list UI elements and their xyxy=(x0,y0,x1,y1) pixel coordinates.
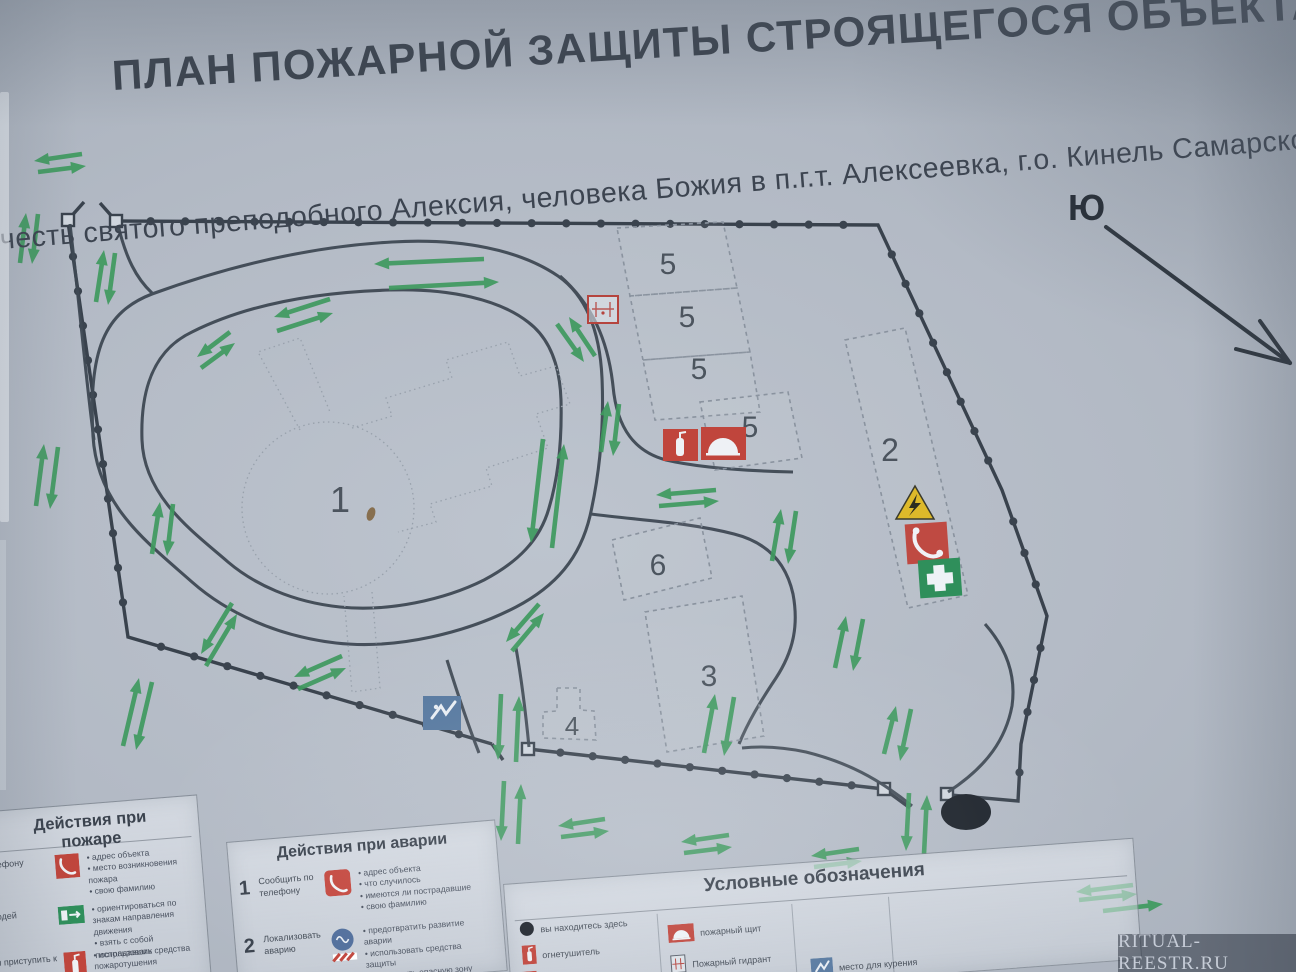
smoking-area-icon xyxy=(423,696,461,730)
step-number: 2 xyxy=(243,934,265,959)
symbol-fire-shield: пожарный щит xyxy=(667,918,762,945)
roads xyxy=(70,224,1013,806)
symbol-label: огнетушитель xyxy=(542,946,600,960)
you-are-here-marker xyxy=(941,794,991,830)
symbol-smoking-area: место для курения xyxy=(810,951,918,972)
building-3-label: 3 xyxy=(701,660,718,693)
containment-icon xyxy=(329,926,360,967)
fire-hydrant-icon xyxy=(670,954,687,972)
row-label: Локализовать аварию xyxy=(263,929,331,958)
column-divider xyxy=(791,904,798,972)
poster-edge-highlight xyxy=(0,92,9,522)
building-5a-label: 5 xyxy=(660,248,677,281)
legend-row: 2 Локализовать аварию предотвратить разв… xyxy=(243,915,501,972)
watermark: RITUAL-REESTR.RU xyxy=(1118,934,1296,972)
symbol-label: место для курения xyxy=(839,957,918,972)
fire-extinguisher-icon xyxy=(63,951,87,972)
emergency-phone-icon xyxy=(905,522,950,565)
ring-road-inner xyxy=(142,290,561,608)
symbol-label: пожарный щит xyxy=(700,923,762,937)
row-label: Эвакуировать людей xyxy=(0,907,58,930)
north-gate-road xyxy=(70,224,94,440)
building-2-label: 2 xyxy=(881,432,899,468)
symbol-label: вы находитесь здесь xyxy=(540,918,628,934)
emergency-exit-icon xyxy=(57,905,85,930)
fire-protection-plan-poster: 1 2 3 4 5 5 5 5 6 xyxy=(0,0,1296,972)
smoking-area-icon xyxy=(810,957,834,972)
fire-extinguisher-icon xyxy=(522,945,538,967)
building-5c-label: 5 xyxy=(691,353,708,386)
building-4-label: 4 xyxy=(565,711,579,741)
building-5a-outline xyxy=(617,222,737,296)
column-divider xyxy=(657,914,664,972)
fire-shield-icon xyxy=(667,923,694,945)
phone-icon xyxy=(324,869,353,902)
ring-road-outer xyxy=(92,241,602,644)
dirt-speck xyxy=(365,506,377,522)
legend-fire-actions: Действия при пожаре Сообщить по телефону… xyxy=(0,794,212,972)
step-number: 1 xyxy=(238,876,260,901)
symbol-fire-hydrant: Пожарный гидрант xyxy=(670,948,772,972)
legend-row: 1 Сообщить по телефону адрес объекта что… xyxy=(238,857,495,924)
compass-label: Ю xyxy=(1068,187,1105,228)
compass-arrow-icon xyxy=(1106,227,1290,363)
fire-extinguisher-icon xyxy=(663,429,698,461)
fire-hydrant-icon xyxy=(588,296,618,323)
symbol-label: Пожарный гидрант xyxy=(692,953,772,969)
you-are-here-dot-icon xyxy=(519,921,535,939)
row-label: Сообщить по телефону xyxy=(258,871,326,900)
legend-accident-actions: Действия при аварии 1 Сообщить по телефо… xyxy=(226,819,508,972)
fire-shield-icon xyxy=(701,427,746,460)
first-aid-icon xyxy=(918,558,963,599)
fence-gate-posts xyxy=(62,214,953,800)
poster-edge-highlight xyxy=(0,540,6,790)
symbol-extinguisher: огнетушитель xyxy=(522,940,601,967)
building-5b-label: 5 xyxy=(679,301,696,334)
building-1-label: 1 xyxy=(330,479,350,520)
entrance-road xyxy=(948,624,1013,792)
row-label: Сообщить по телефону xyxy=(0,855,55,878)
compass-south: Ю xyxy=(1068,187,1290,363)
building-6-label: 6 xyxy=(650,549,667,582)
phone-icon xyxy=(54,853,80,884)
